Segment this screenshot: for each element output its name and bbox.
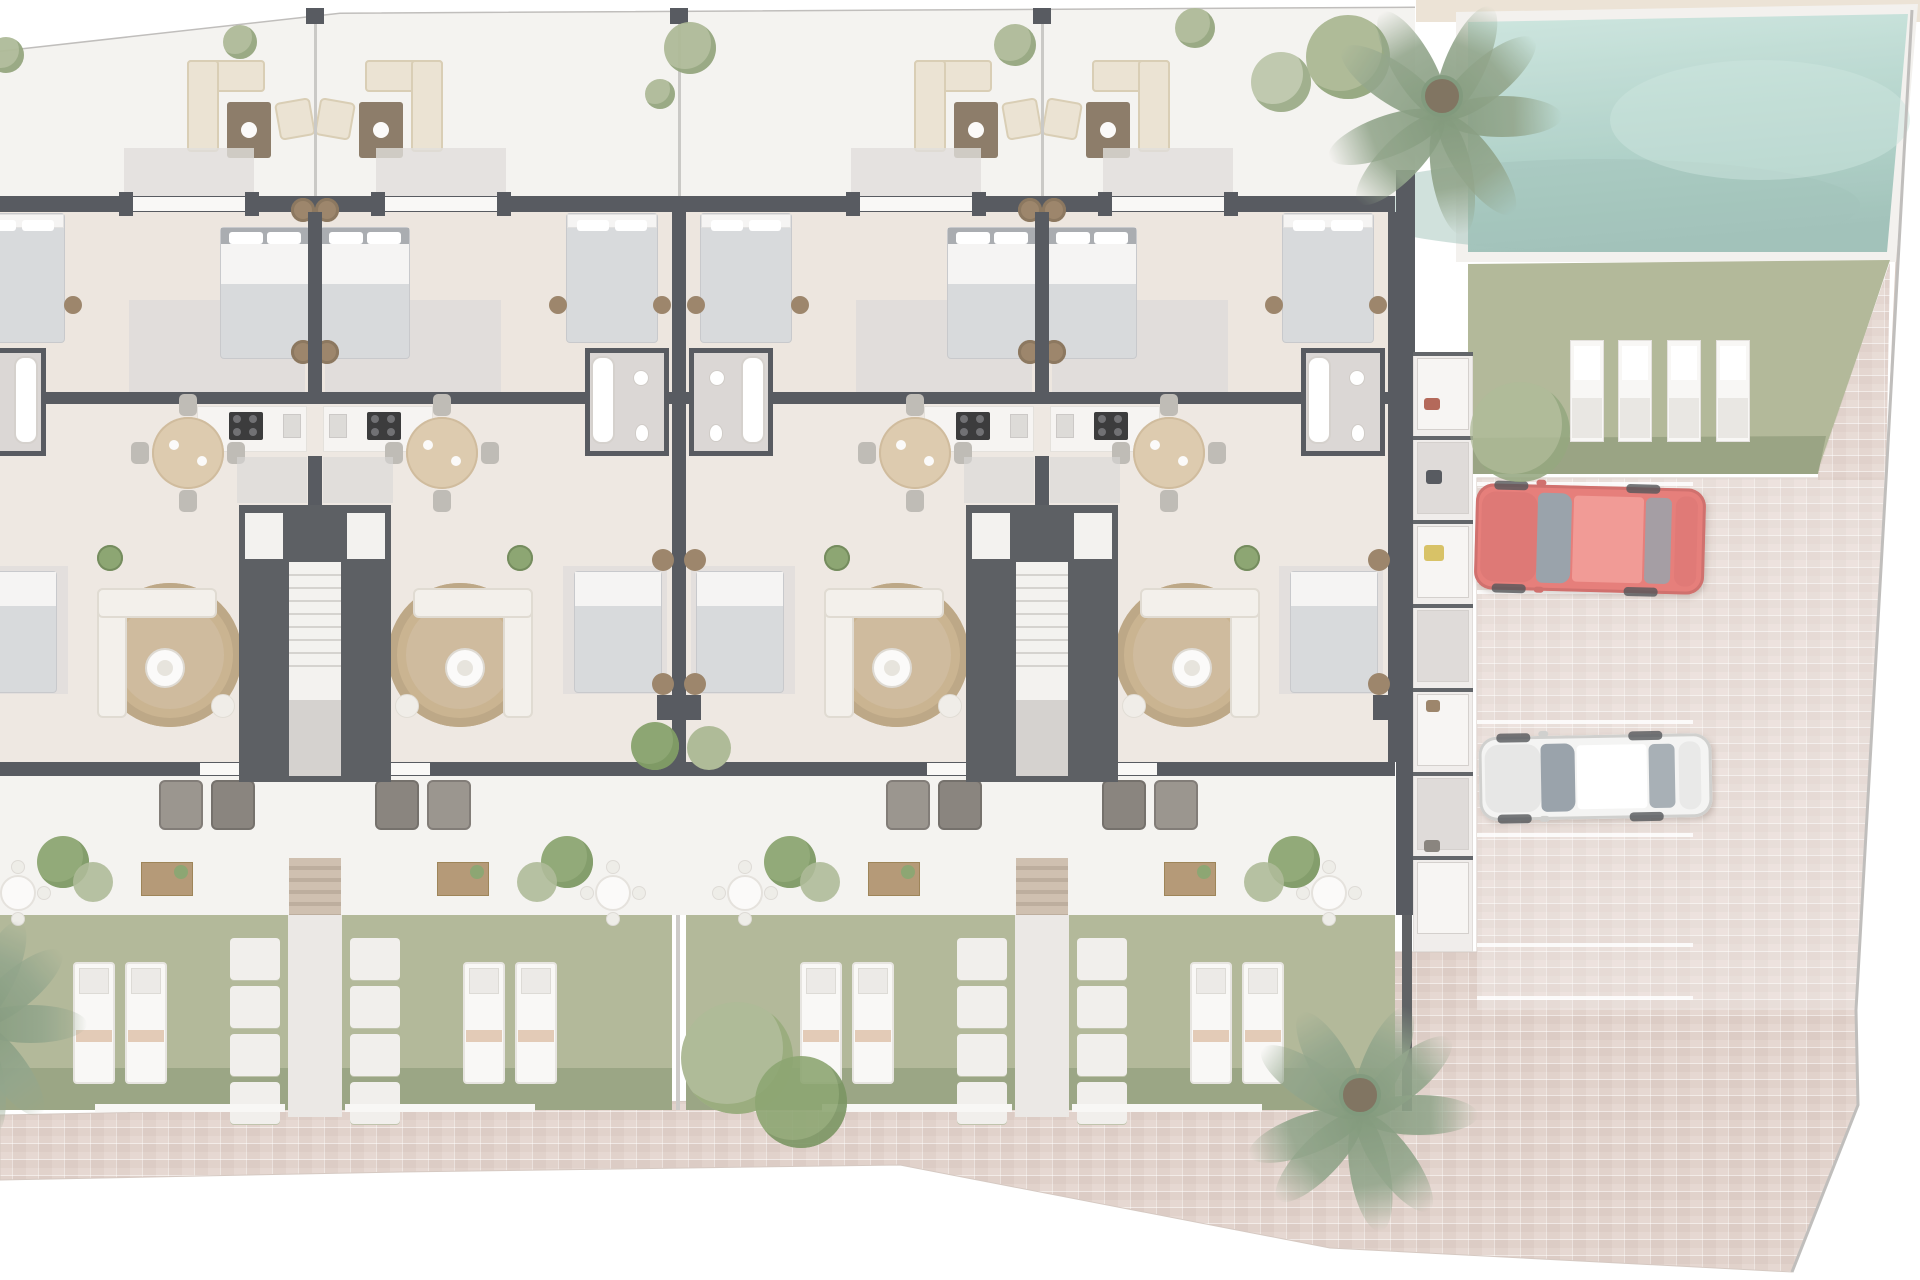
terrace-bush	[0, 37, 24, 73]
bush	[1470, 382, 1570, 482]
pool-palm	[1322, 0, 1562, 216]
patio-bush	[631, 722, 679, 770]
terrace-bush	[223, 25, 257, 59]
patio-bush	[517, 862, 557, 902]
patio-bush	[800, 862, 840, 902]
patio-bush	[1244, 862, 1284, 902]
patio-bush	[687, 726, 731, 770]
paving-palm	[1242, 977, 1478, 1213]
garden-bush	[755, 1056, 847, 1148]
garden-palm	[0, 893, 87, 1117]
terrace-bush	[664, 22, 716, 74]
terrace-bush	[994, 24, 1036, 66]
palm-crown	[1425, 79, 1459, 113]
terrace-bush	[645, 79, 675, 109]
palm-crown	[1343, 1078, 1376, 1111]
planting-layer	[0, 0, 1920, 1280]
bush	[1251, 52, 1311, 112]
site-plan	[0, 0, 1920, 1280]
terrace-bush	[1175, 8, 1215, 48]
